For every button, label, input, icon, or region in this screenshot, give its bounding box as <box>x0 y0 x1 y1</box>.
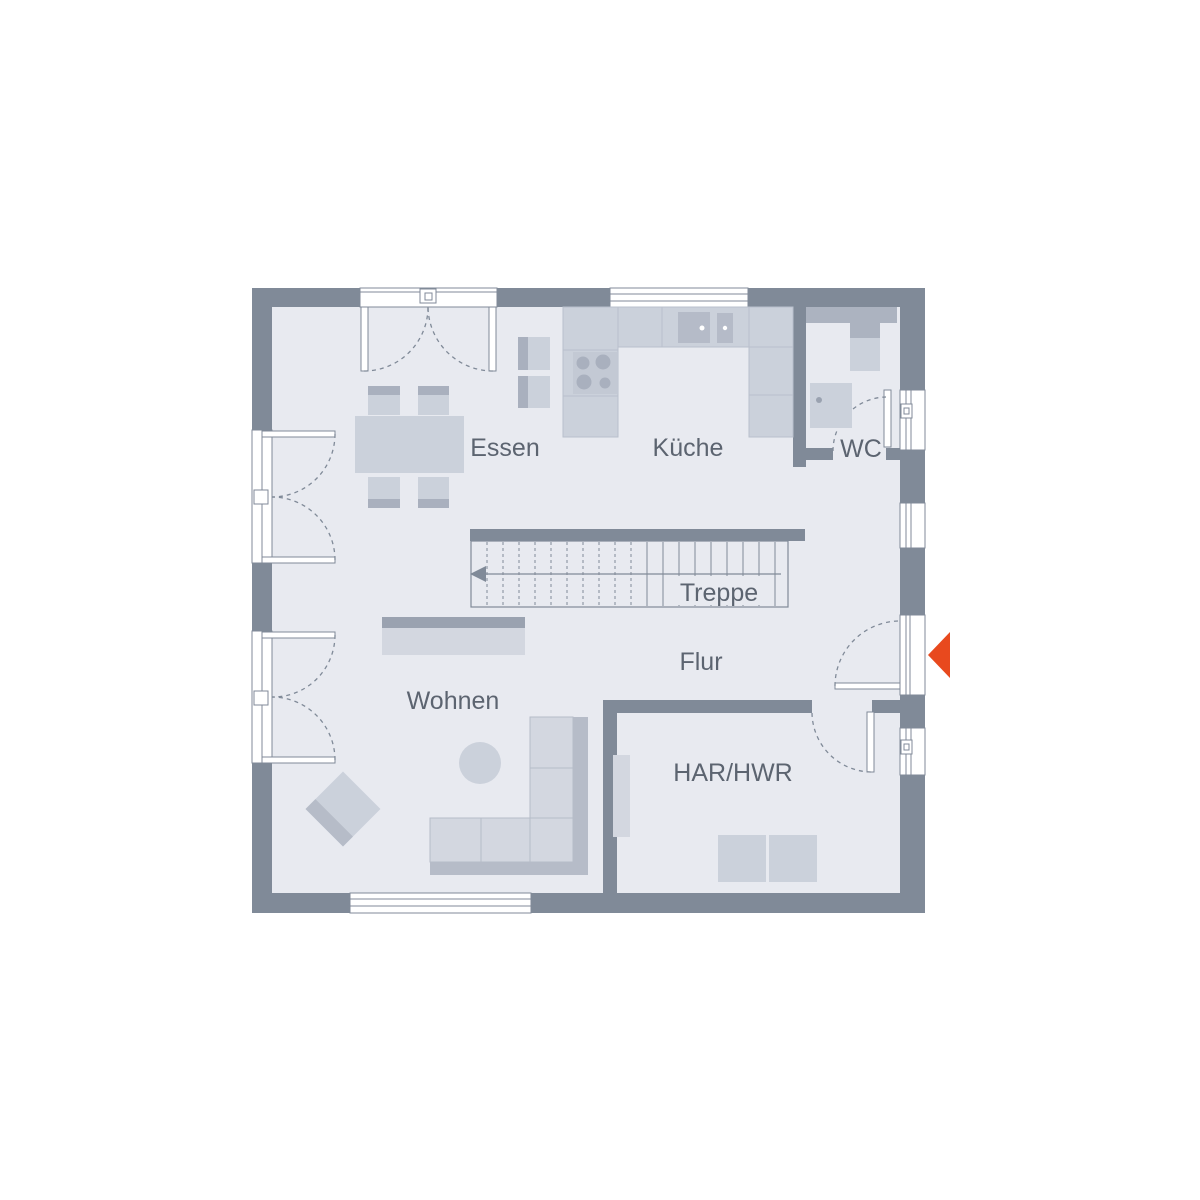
chair-backrest <box>418 499 449 508</box>
kitchen-cabinet <box>563 307 618 350</box>
room-label-wc: WC <box>840 435 882 463</box>
kitchen-tall-cabinet <box>749 395 793 437</box>
window-handle <box>901 404 912 418</box>
room-label-flur: Flur <box>679 648 722 676</box>
room-label-essen: Essen <box>470 434 539 462</box>
floorplan-canvas: Essen Küche WC Treppe Flur Wohnen HAR/HW… <box>0 0 1200 1200</box>
wall-right <box>900 288 925 913</box>
faucet-dot <box>723 326 727 330</box>
kitchen-sink <box>678 312 710 343</box>
kitchen-window <box>610 288 748 307</box>
toilet-bowl <box>850 338 880 371</box>
window-opening <box>900 390 925 450</box>
washer <box>718 835 766 882</box>
door-leaf-bottom <box>262 757 335 763</box>
wall-har-top-stub <box>872 700 900 713</box>
door-leaf-bottom <box>262 557 335 563</box>
floorplan-drawing: Essen Küche WC Treppe Flur Wohnen HAR/HW… <box>0 0 1200 1200</box>
har-window <box>900 728 925 775</box>
door-handle <box>420 289 436 303</box>
wall-stairs <box>470 529 805 541</box>
dining-table <box>355 416 464 473</box>
door-leaf-left <box>361 307 368 371</box>
room-label-treppe: Treppe <box>680 579 758 607</box>
door-leaf <box>867 712 874 772</box>
kitchen-tall-cabinet <box>749 307 793 347</box>
kitchen-tall-cabinet <box>749 347 793 395</box>
coffee-table <box>459 742 501 784</box>
wall-top <box>252 288 925 307</box>
kitchen-cabinet <box>563 396 618 437</box>
window-handle <box>901 740 912 754</box>
door-opening <box>900 615 925 695</box>
wc-sink <box>810 383 852 428</box>
entrance-arrow-icon <box>928 632 950 678</box>
door-handle <box>254 490 268 504</box>
window-opening <box>900 503 925 548</box>
faucet-dot <box>816 397 822 403</box>
wall-wc-left <box>793 307 806 467</box>
chair-backrest <box>368 386 400 395</box>
door-leaf-top <box>262 632 335 638</box>
room-label-har-hwr: HAR/HWR <box>673 759 792 787</box>
door-leaf-top <box>262 431 335 437</box>
wall-har-top <box>603 700 812 713</box>
dryer <box>769 835 817 882</box>
window-opening <box>350 893 531 913</box>
door-leaf-right <box>489 307 496 371</box>
wc-counter <box>806 307 897 323</box>
chair-backrest <box>418 386 449 395</box>
door-handle <box>254 691 268 705</box>
wall-wc-bottom <box>793 448 833 460</box>
chair-backrest <box>368 499 400 508</box>
utility-shelf <box>613 755 630 837</box>
small-cabinet-strip <box>518 337 528 370</box>
faucet-dot <box>700 326 705 331</box>
flur-window <box>900 503 925 548</box>
door-leaf <box>835 683 900 689</box>
sideboard-top <box>382 617 525 628</box>
wall-wc-bottom-stub <box>886 448 900 460</box>
kitchen-cabinet <box>618 307 662 347</box>
wc-window <box>900 390 925 450</box>
small-cabinet-strip <box>518 376 528 408</box>
door-leaf <box>884 390 891 447</box>
sofa-back-right <box>573 717 588 875</box>
wohnen-window <box>350 893 531 913</box>
window-opening <box>610 288 748 307</box>
wall-left <box>252 288 272 913</box>
room-label-kueche: Küche <box>653 434 724 462</box>
sideboard-body <box>382 628 525 655</box>
room-label-wohnen: Wohnen <box>407 687 500 715</box>
toilet-tank <box>850 323 880 338</box>
